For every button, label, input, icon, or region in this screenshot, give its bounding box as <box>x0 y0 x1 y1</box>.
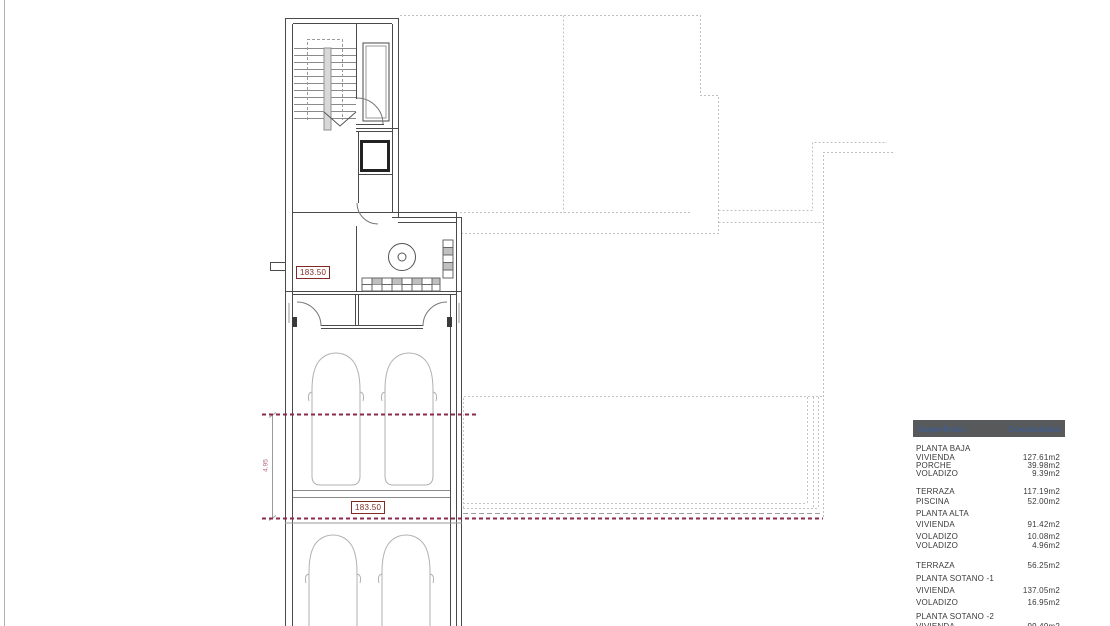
table-row: PLANTA SOTANO -1 <box>916 574 1060 583</box>
upper-floor-overlay-outline <box>400 16 893 519</box>
door-hinge-left <box>292 317 297 327</box>
car-outline <box>381 353 436 485</box>
car-outlines <box>305 353 436 626</box>
row-label: PISCINA <box>916 497 949 506</box>
row-value: 9.39m2 <box>1032 469 1060 478</box>
table-row: VIVIENDA137.05m2 <box>916 586 1060 595</box>
table-row: PLANTA BAJA <box>916 444 1060 453</box>
dimension-text: 4.95 <box>263 451 272 481</box>
row-value: 91.42m2 <box>1027 520 1060 529</box>
table-row: VIVIENDA91.42m2 <box>916 520 1060 529</box>
table-row: PLANTA ALTA <box>916 509 1060 518</box>
row-value: 4.96m2 <box>1032 541 1060 550</box>
car-outline <box>378 535 433 626</box>
row-label: VOLADIZO <box>916 541 958 550</box>
table-row: VOLADIZO16.95m2 <box>916 598 1060 607</box>
floor-plan-canvas: 183.50 183.50 4.95 Superficies Construid… <box>0 0 1110 626</box>
row-label: TERRAZA <box>916 561 955 570</box>
terrace-overlay-outline <box>463 397 823 514</box>
row-label: PLANTA SOTANO -2 <box>916 612 994 621</box>
car-outline <box>305 535 360 626</box>
porch-side-hatch <box>443 240 453 278</box>
row-value: 16.95m2 <box>1027 598 1060 607</box>
elevator-shaft <box>362 43 390 171</box>
table-row: TERRAZA117.19m2 <box>916 487 1060 496</box>
row-value: 117.19m2 <box>1023 487 1060 496</box>
row-label: PLANTA SOTANO -1 <box>916 574 994 583</box>
row-label: VIVIENDA <box>916 622 955 626</box>
porch-step-hatch <box>362 278 440 291</box>
row-label: PLANTA ALTA <box>916 509 969 518</box>
porch-column <box>389 244 416 271</box>
table-row: PISCINA52.00m2 <box>916 497 1060 506</box>
row-label: VOLADIZO <box>916 469 958 478</box>
row-label: VIVIENDA <box>916 520 955 529</box>
table-row: PLANTA SOTANO -2 <box>916 612 1060 621</box>
areas-table-header-label: Superficies <box>918 424 966 434</box>
door-hinge-right <box>447 317 452 327</box>
level-label-garage: 183.50 <box>351 501 385 514</box>
row-label: VOLADIZO <box>916 532 958 541</box>
row-value: 52.00m2 <box>1027 497 1060 506</box>
level-label-porch: 183.50 <box>296 266 330 279</box>
areas-table: Superficies Construidas PLANTA BAJA VIVI… <box>913 420 1065 626</box>
row-value: 10.08m2 <box>1027 532 1060 541</box>
table-row: VOLADIZO9.39m2 <box>916 469 1060 478</box>
staircase <box>294 40 356 131</box>
car-outline <box>308 353 363 485</box>
section-cut-lines <box>262 415 823 519</box>
areas-table-header: Superficies Construidas <box>913 420 1065 437</box>
row-label: VOLADIZO <box>916 598 958 607</box>
table-row: TERRAZA56.25m2 <box>916 561 1060 570</box>
table-row: VIVIENDA99.49m2 <box>916 622 1060 626</box>
row-value: 137.05m2 <box>1023 586 1060 595</box>
table-row: VOLADIZO10.08m2 <box>916 532 1060 541</box>
row-label: PLANTA BAJA <box>916 444 971 453</box>
table-row: VOLADIZO4.96m2 <box>916 541 1060 550</box>
row-label: VIVIENDA <box>916 586 955 595</box>
row-value: 99.49m2 <box>1027 622 1060 626</box>
row-value: 56.25m2 <box>1027 561 1060 570</box>
service-shaft <box>362 142 389 171</box>
areas-table-header-value: Construidas <box>1008 424 1060 434</box>
row-label: TERRAZA <box>916 487 955 496</box>
garage-floor-edge <box>293 491 450 498</box>
